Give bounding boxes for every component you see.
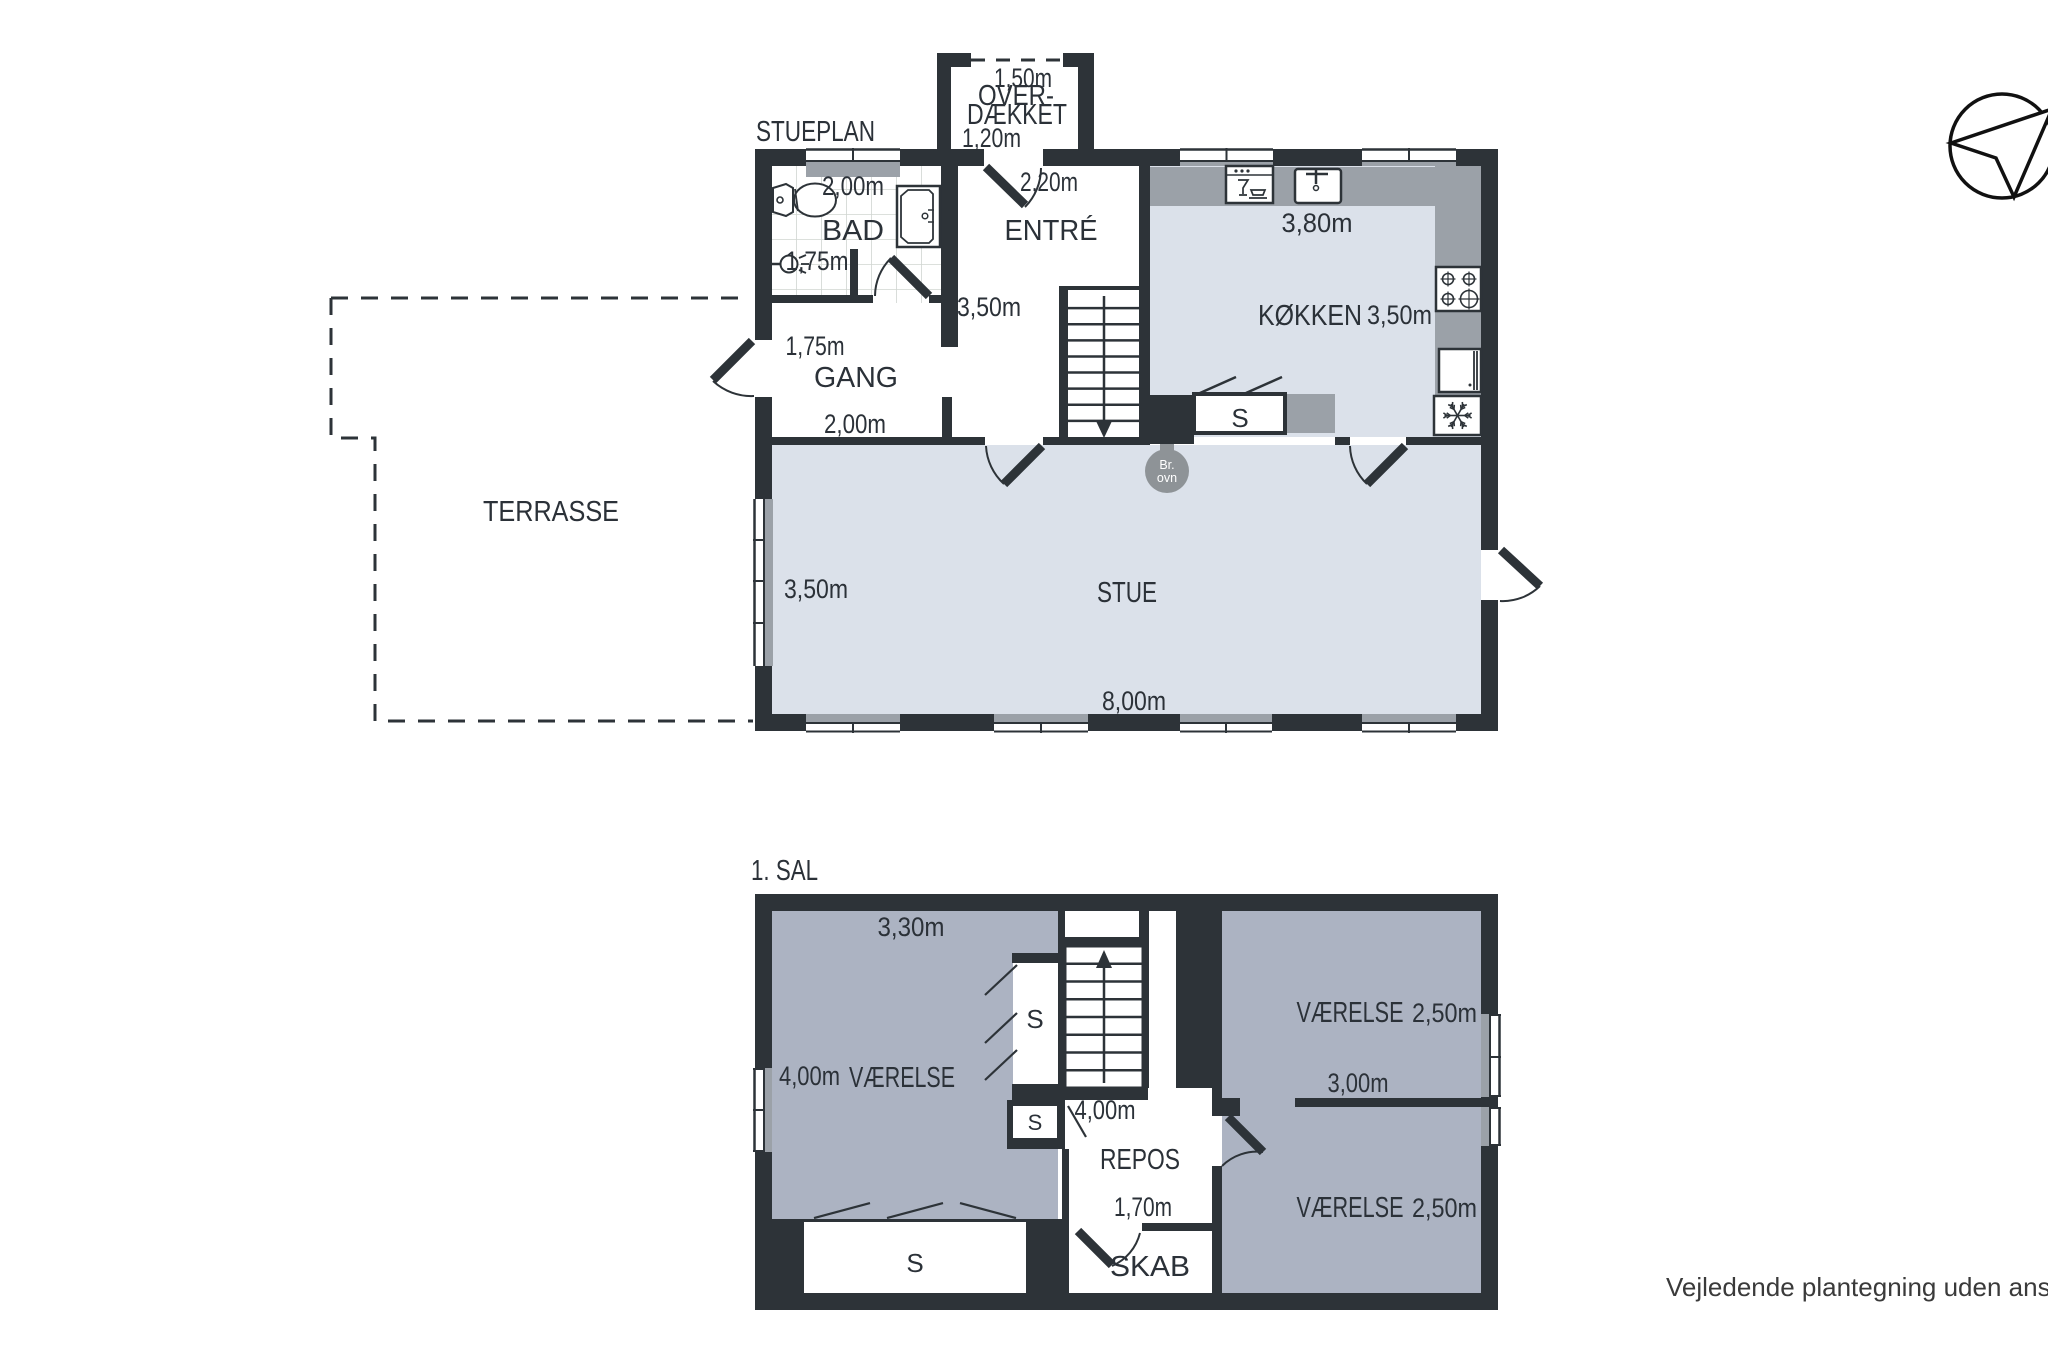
svg-text:8,00m: 8,00m <box>1102 686 1166 716</box>
svg-text:3,30m: 3,30m <box>878 912 945 942</box>
svg-text:1,20m: 1,20m <box>962 123 1021 153</box>
svg-text:Br.: Br. <box>1159 458 1174 472</box>
svg-text:1,75m: 1,75m <box>786 246 849 276</box>
svg-text:BAD: BAD <box>822 215 884 247</box>
svg-text:GANG: GANG <box>814 362 898 394</box>
svg-text:1,70m: 1,70m <box>1114 1192 1172 1222</box>
svg-text:2,20m: 2,20m <box>1020 167 1078 197</box>
svg-text:3,80m: 3,80m <box>1282 208 1353 238</box>
svg-text:REPOS: REPOS <box>1100 1144 1180 1176</box>
svg-text:ovn: ovn <box>1157 471 1177 485</box>
svg-text:3,00m: 3,00m <box>1328 1068 1389 1098</box>
svg-text:2,50m: 2,50m <box>1412 998 1477 1028</box>
svg-text:VÆRELSE: VÆRELSE <box>1297 997 1404 1029</box>
svg-text:STUE: STUE <box>1097 577 1157 609</box>
svg-text:2,50m: 2,50m <box>1412 1193 1477 1223</box>
svg-text:S: S <box>1231 403 1248 433</box>
svg-text:1. SAL: 1. SAL <box>751 855 818 887</box>
svg-text:ENTRÉ: ENTRÉ <box>1005 214 1098 247</box>
svg-text:STUEPLAN: STUEPLAN <box>756 116 875 148</box>
svg-text:1,75m: 1,75m <box>786 331 845 361</box>
svg-text:TERRASSE: TERRASSE <box>483 496 619 528</box>
svg-text:S: S <box>906 1248 923 1278</box>
svg-text:4,00m: 4,00m <box>1075 1095 1136 1125</box>
svg-text:KØKKEN: KØKKEN <box>1258 300 1362 332</box>
svg-text:Vejledende plantegning uden an: Vejledende plantegning uden ansvar <box>1666 1272 2048 1302</box>
svg-text:S: S <box>1028 1110 1043 1135</box>
svg-text:3,50m: 3,50m <box>957 292 1021 322</box>
svg-text:3,50m: 3,50m <box>1367 300 1432 330</box>
svg-text:2,00m: 2,00m <box>822 171 884 201</box>
svg-text:SKAB: SKAB <box>1110 1251 1190 1283</box>
svg-text:VÆRELSE: VÆRELSE <box>849 1062 955 1094</box>
svg-text:VÆRELSE: VÆRELSE <box>1297 1192 1404 1224</box>
svg-text:2,00m: 2,00m <box>824 409 886 439</box>
svg-text:4,00m: 4,00m <box>779 1061 840 1091</box>
svg-text:S: S <box>1026 1004 1043 1034</box>
svg-text:3,50m: 3,50m <box>784 574 848 604</box>
